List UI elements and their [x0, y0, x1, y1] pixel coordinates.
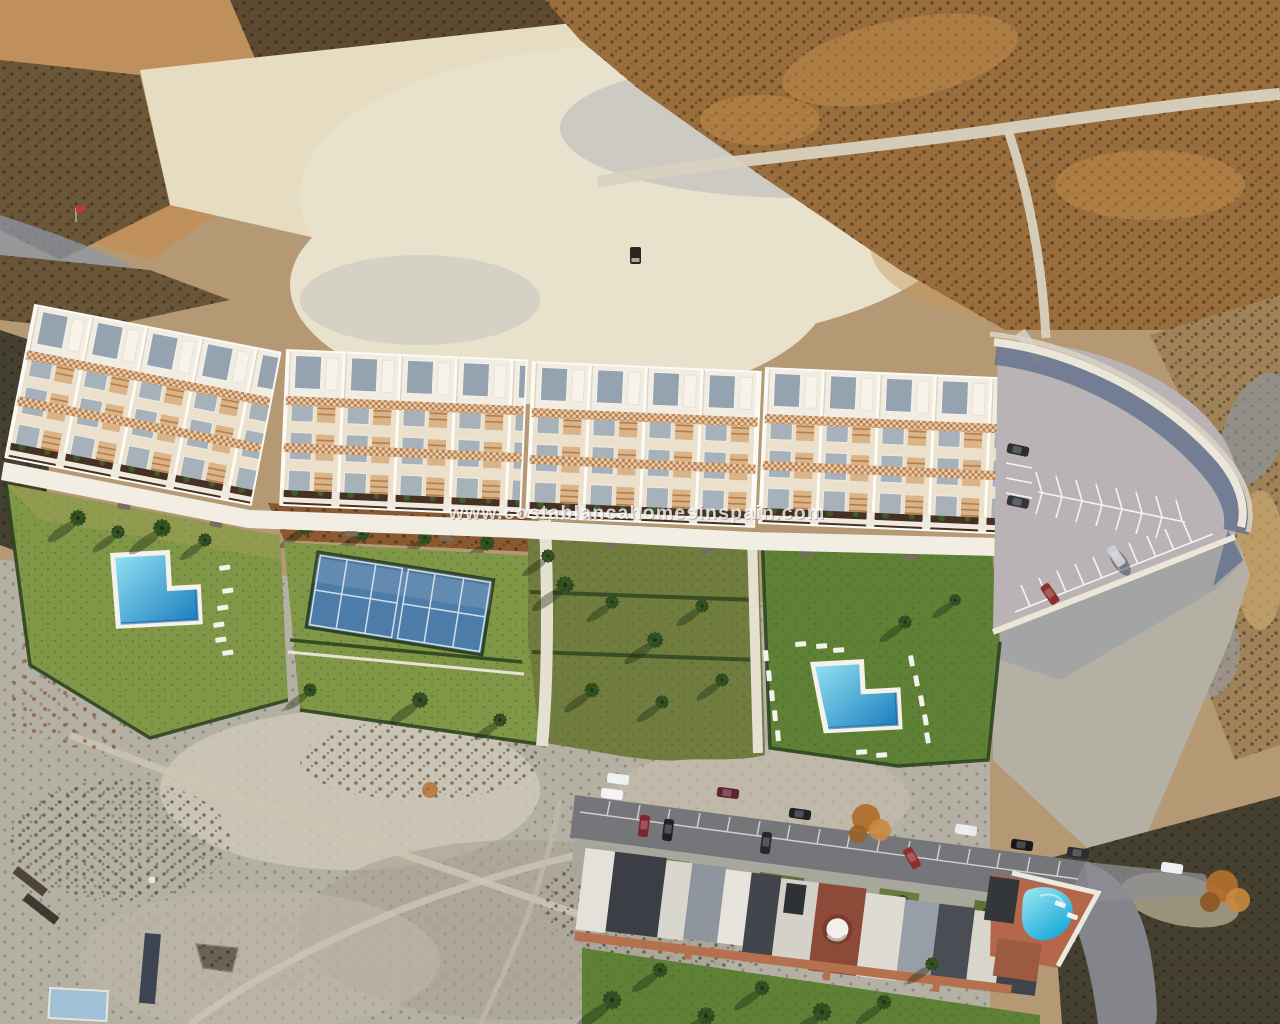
central-garden	[520, 520, 765, 761]
ruin-structure	[196, 944, 238, 972]
garden-path-right	[752, 534, 758, 753]
survey-car-north	[630, 247, 641, 264]
watermark-text: www.costablancahomesinspain.com	[448, 502, 826, 524]
poolside-roof-dark	[984, 876, 1020, 924]
aerial-photo-canvas: www.costablancahomesinspain.com www.cost…	[0, 0, 1280, 1024]
blue-roof-building	[48, 988, 107, 1021]
watermark: www.costablancahomesinspain.com www.cost…	[448, 502, 827, 525]
apartment-block-b	[280, 350, 527, 515]
right-garden	[762, 532, 1000, 766]
poolside-roof-red	[993, 938, 1042, 982]
